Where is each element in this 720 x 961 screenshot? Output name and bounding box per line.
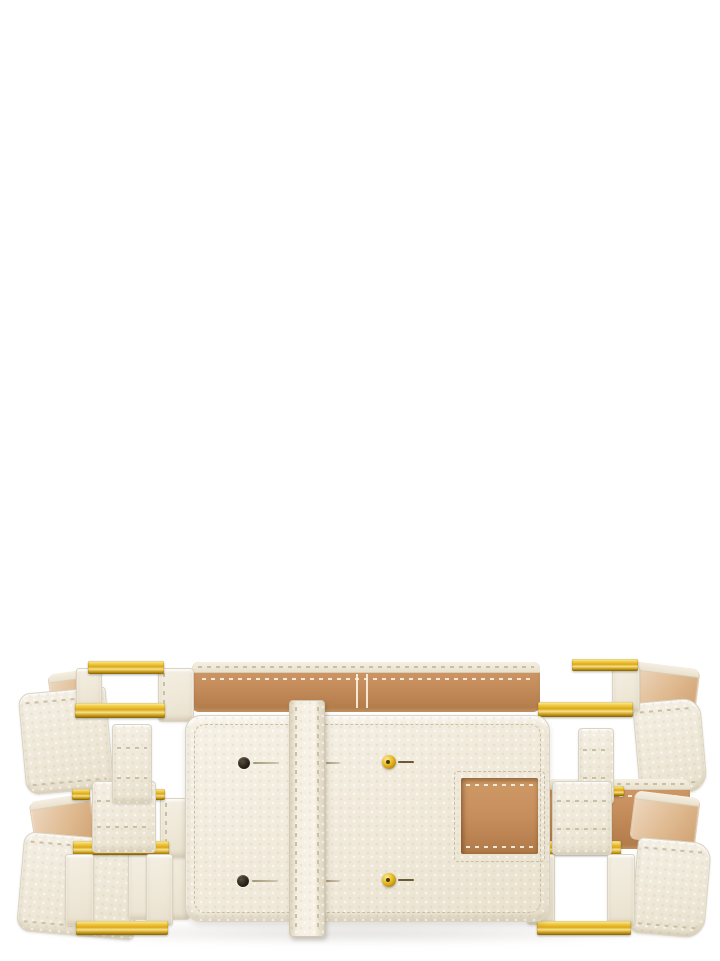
center-keeper-strap <box>289 700 325 937</box>
bottom-strap-end-right <box>630 837 712 939</box>
slot-lining-stitch <box>466 784 533 786</box>
belt-hole-bottom <box>237 875 249 887</box>
bottom-right-buckle-side-right <box>607 854 635 925</box>
gold-stud-top-prong <box>398 761 414 763</box>
gold-stud-bottom-prong <box>398 879 414 881</box>
keeper-stitch <box>117 747 147 749</box>
end-stitch <box>640 707 694 714</box>
gold-stud-bottom <box>382 873 396 887</box>
panel-slit-top <box>326 762 340 764</box>
keeper-stitch <box>557 828 607 830</box>
panel-slit-bottom <box>326 880 340 882</box>
keeper-stitch <box>97 826 151 828</box>
top-right-buckle-bottom-bar <box>538 702 633 717</box>
wedge-edge <box>633 661 700 678</box>
product-photo <box>0 0 720 961</box>
center-keeper-stitch-right <box>317 707 319 930</box>
keeper-stitch <box>583 777 609 779</box>
keeper-stitch <box>583 749 609 751</box>
bottom-left-buckle-side-left <box>65 854 94 926</box>
end-stitch <box>638 922 698 929</box>
gold-stud-top <box>382 755 396 769</box>
keeper-stitch <box>557 800 607 802</box>
keeper-loop-right-lower <box>552 781 612 855</box>
belt-hole-top-slit <box>253 762 279 764</box>
top-left-buckle-top-bar <box>88 661 164 674</box>
keeper-loop-left-upper <box>112 724 152 804</box>
slot-lining-stitch <box>466 846 533 848</box>
top-left-buckle-bottom-bar <box>75 703 165 718</box>
bottom-left-buckle-side-right <box>146 854 173 926</box>
top-strap-center-seam-left <box>356 674 358 708</box>
top-right-buckle-top-bar <box>572 659 638 671</box>
top-strap-lining <box>192 662 540 712</box>
bottom-right-buckle-bottom-bar <box>537 921 631 935</box>
center-keeper-stitch-left <box>295 707 297 930</box>
belt-hole-top <box>238 757 250 769</box>
top-strap-lining-edge <box>192 662 540 673</box>
end-stitch <box>644 847 704 854</box>
buckle-panel <box>185 715 550 922</box>
keeper-stitch <box>117 777 147 779</box>
bottom-left-buckle-bottom-bar <box>76 921 168 935</box>
top-strap-center-seam-right <box>366 674 368 708</box>
belt-hole-bottom-slit <box>252 880 278 882</box>
panel-slot-opening <box>461 778 538 854</box>
gold-trim-left-a <box>72 789 90 800</box>
